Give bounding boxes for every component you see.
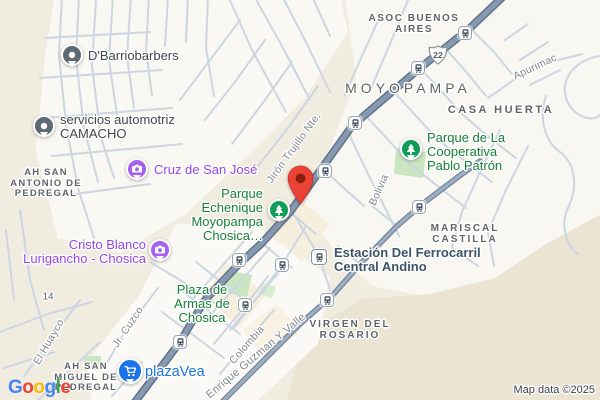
- poi-label-plaza-de-armas-de-chosica[interactable]: Plaza de Armas de Chosica: [174, 283, 230, 325]
- poi-label-parque-cooperativa-pablo-patron[interactable]: Parque de La Cooperativa Pablo Patrón: [427, 131, 505, 173]
- area-label-mariscal-castilla: MARISCAL CASTILLA: [431, 223, 500, 245]
- transit-station-icon[interactable]: [411, 61, 425, 75]
- area-label-asoc-buenos-aires: ASOC BUENOS AIRES: [369, 13, 460, 35]
- cart-pin-icon[interactable]: [117, 358, 143, 384]
- area-label-moyopampa: MOYOPAMPA: [345, 81, 471, 97]
- google-logo-letter: e: [60, 377, 70, 398]
- transit-station-icon[interactable]: [275, 258, 289, 272]
- transit-station-icon[interactable]: [320, 293, 334, 307]
- generic-pin-icon[interactable]: [61, 44, 83, 66]
- google-logo[interactable]: Google: [8, 377, 70, 399]
- transit-station-icon[interactable]: [348, 116, 362, 130]
- transit-station-icon[interactable]: [318, 164, 332, 178]
- camera-pin-icon[interactable]: [149, 239, 171, 261]
- poi-label-cruz-de-san-jose[interactable]: Cruz de San José: [154, 163, 257, 177]
- google-logo-letter: g: [45, 377, 56, 398]
- transit-station-icon[interactable]: [458, 26, 472, 40]
- camera-pin-icon[interactable]: [126, 158, 148, 180]
- poi-label-cristo-blanco[interactable]: Cristo Blanco Lurigancho - Chosica: [23, 238, 146, 266]
- transit-station-icon[interactable]: [173, 335, 187, 349]
- route-shield: 22: [427, 44, 449, 71]
- transit-station-icon[interactable]: [232, 253, 246, 267]
- google-logo-letter: o: [33, 377, 44, 398]
- area-label-ah-san-antonio-de-pedregal: AH SAN ANTONIO DE PEDREGAL: [10, 168, 81, 200]
- map-stage[interactable]: Map data ©2025 D'Barriobarbersservicios …: [0, 0, 600, 400]
- svg-text:22: 22: [433, 50, 443, 60]
- railway-station-icon[interactable]: [311, 249, 327, 265]
- area-label-block-14: 14: [42, 291, 53, 302]
- area-label-virgen-del-rosario: VIRGEN DEL ROSARIO: [309, 319, 390, 341]
- transit-station-icon[interactable]: [412, 200, 426, 214]
- google-logo-letter: o: [22, 377, 33, 398]
- poi-label-plazavea[interactable]: plazaVea: [145, 365, 205, 379]
- map-attribution[interactable]: Map data ©2025: [514, 384, 596, 396]
- tree-pin-icon[interactable]: [400, 138, 422, 160]
- generic-pin-icon[interactable]: [33, 115, 55, 137]
- dropped-pin-icon[interactable]: [287, 165, 314, 210]
- poi-label-parque-echenique[interactable]: Parque Echenique Moyopampa Chosica…: [191, 187, 263, 243]
- poi-label-estacion-ferrocarril-central-andino[interactable]: Estación Del Ferrocarril Central Andino: [334, 246, 481, 274]
- area-label-casa-huerta: CASA HUERTA: [448, 104, 554, 116]
- google-logo-letter: G: [8, 377, 22, 398]
- transit-station-icon[interactable]: [238, 298, 252, 312]
- poi-label-dbarriobarbers[interactable]: D'Barriobarbers: [88, 49, 179, 63]
- poi-label-servicios-automotriz-camacho[interactable]: servicios automotriz CAMACHO: [60, 113, 175, 141]
